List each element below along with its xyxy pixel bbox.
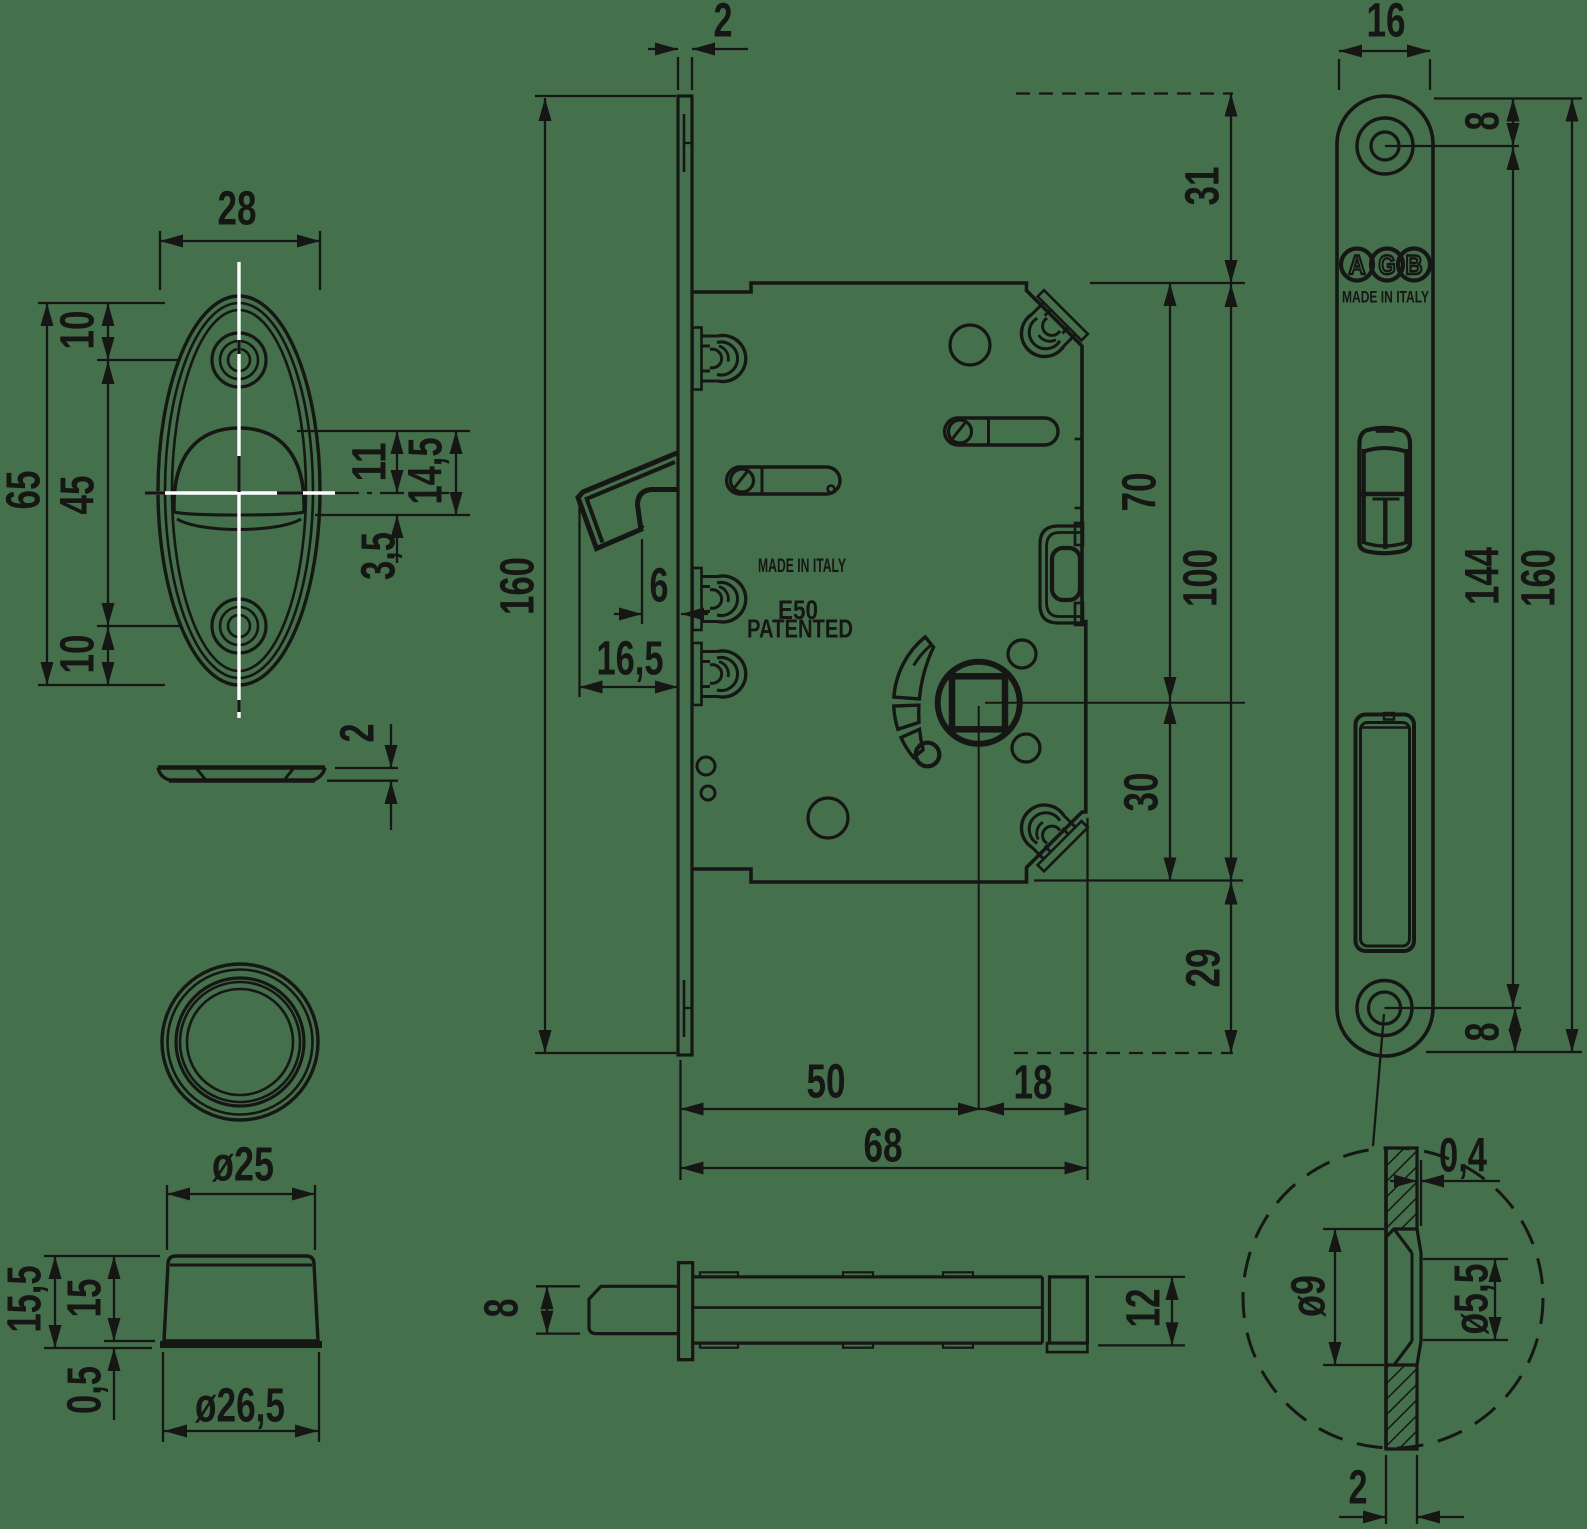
svg-text:2: 2 — [714, 0, 733, 48]
svg-text:8: 8 — [1457, 1023, 1510, 1042]
svg-text:10: 10 — [52, 311, 105, 350]
svg-text:ø9: ø9 — [1283, 1275, 1336, 1317]
svg-text:30: 30 — [1116, 773, 1169, 812]
svg-text:45: 45 — [52, 476, 105, 515]
svg-text:6: 6 — [650, 560, 669, 613]
svg-text:A: A — [1349, 250, 1366, 280]
svg-text:15: 15 — [59, 1279, 112, 1318]
svg-text:160: 160 — [1513, 549, 1566, 607]
svg-text:12: 12 — [1118, 1289, 1171, 1328]
svg-text:8: 8 — [1457, 112, 1510, 131]
svg-text:ø26,5: ø26,5 — [195, 1380, 285, 1433]
svg-text:0,5: 0,5 — [59, 1366, 112, 1414]
svg-text:16: 16 — [1367, 0, 1406, 48]
svg-text:PATENTED: PATENTED — [747, 614, 853, 644]
svg-text:2: 2 — [332, 724, 385, 743]
svg-text:2: 2 — [1349, 1462, 1368, 1515]
svg-text:B: B — [1406, 250, 1423, 280]
svg-text:29: 29 — [1178, 949, 1231, 988]
svg-text:16,5: 16,5 — [597, 633, 664, 686]
svg-text:3,5: 3,5 — [353, 532, 406, 580]
svg-text:MADE IN ITALY: MADE IN ITALY — [1342, 288, 1429, 307]
svg-text:70: 70 — [1114, 473, 1167, 512]
svg-text:8: 8 — [476, 1299, 529, 1318]
svg-text:28: 28 — [218, 183, 257, 236]
svg-text:18: 18 — [1014, 1057, 1053, 1110]
svg-text:15,5: 15,5 — [0, 1266, 52, 1333]
svg-text:ø5,5: ø5,5 — [1446, 1264, 1499, 1335]
svg-text:11: 11 — [344, 443, 397, 482]
svg-text:100: 100 — [1175, 549, 1228, 607]
svg-text:144: 144 — [1457, 547, 1510, 605]
svg-text:0,4: 0,4 — [1439, 1130, 1487, 1183]
svg-text:ø25: ø25 — [212, 1139, 274, 1192]
svg-text:10: 10 — [52, 635, 105, 674]
svg-text:MADE IN ITALY: MADE IN ITALY — [758, 556, 846, 577]
svg-text:G: G — [1379, 250, 1396, 280]
svg-text:160: 160 — [492, 557, 545, 615]
svg-text:31: 31 — [1177, 167, 1230, 206]
svg-text:65: 65 — [0, 471, 51, 510]
svg-text:50: 50 — [807, 1056, 846, 1109]
svg-text:68: 68 — [864, 1120, 903, 1173]
svg-text:14,5: 14,5 — [400, 438, 453, 505]
